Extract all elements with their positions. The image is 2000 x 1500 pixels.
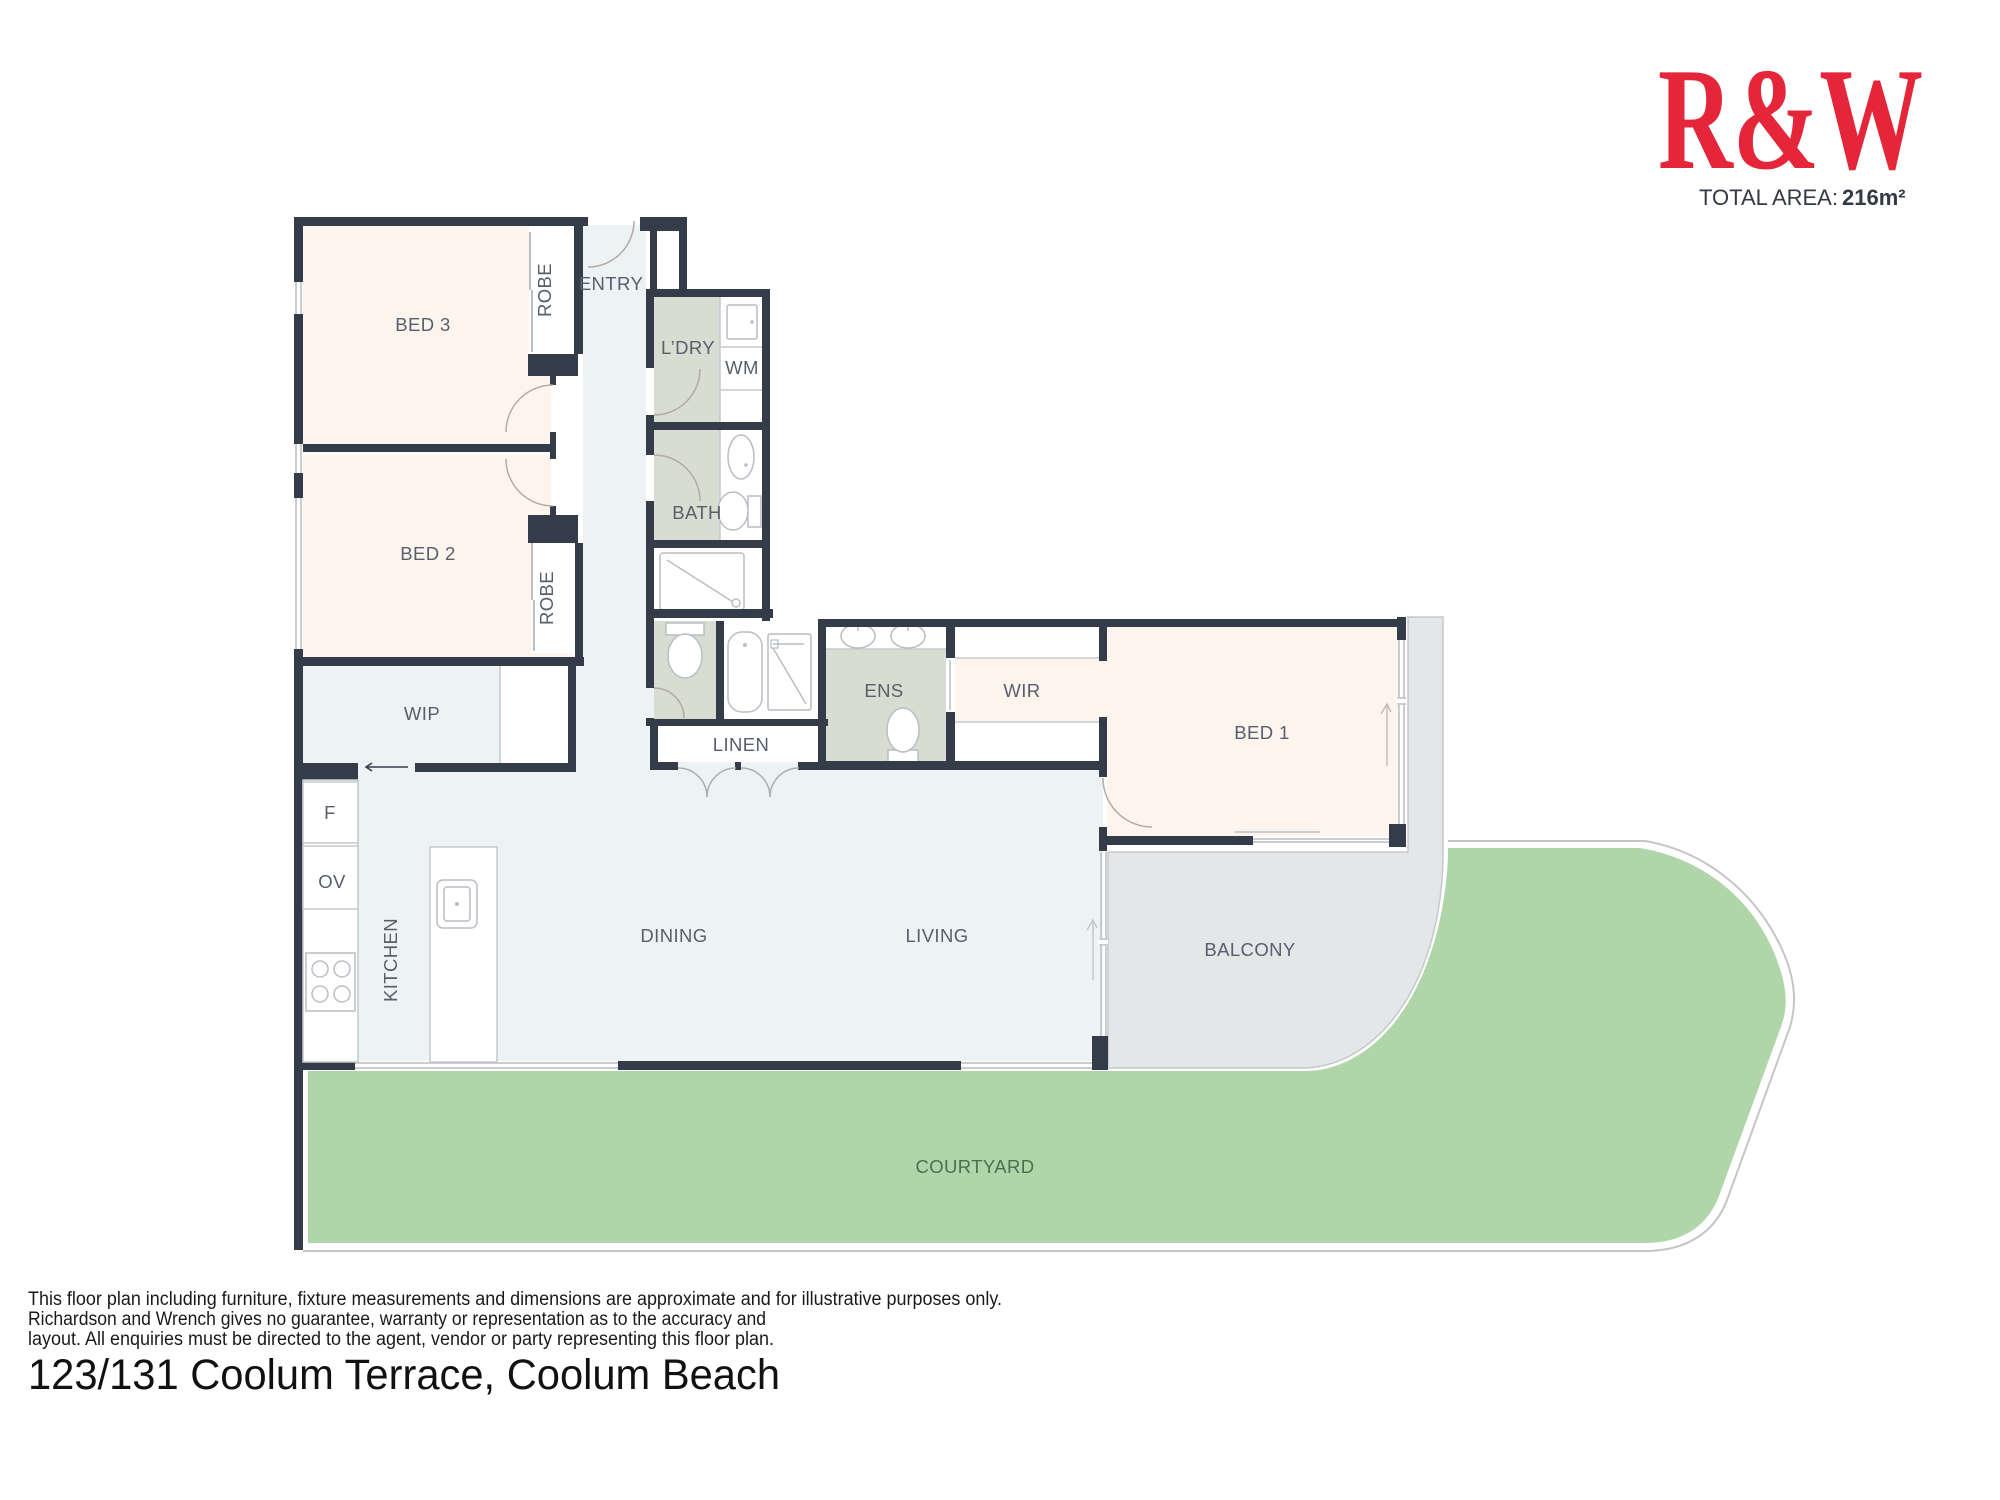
svg-text:WM: WM [725,357,759,378]
svg-text:DINING: DINING [640,925,707,946]
svg-text:L’DRY: L’DRY [661,337,715,358]
svg-text:TOTAL AREA:: TOTAL AREA: [1699,185,1838,210]
svg-text:R&W: R&W [1658,38,1923,200]
svg-text:ENS: ENS [864,680,903,701]
svg-text:BED 1: BED 1 [1234,722,1289,743]
svg-text:layout. All enquiries must be: layout. All enquiries must be directed t… [28,1329,774,1350]
svg-text:Richardson and Wrench gives no: Richardson and Wrench gives no guarantee… [28,1309,766,1330]
svg-text:123/131 Coolum Terrace, Coolum: 123/131 Coolum Terrace, Coolum Beach [28,1351,780,1399]
svg-text:ENTRY: ENTRY [579,273,643,294]
svg-text:LIVING: LIVING [905,925,968,946]
svg-text:BALCONY: BALCONY [1204,939,1295,960]
svg-text:BATH: BATH [672,502,722,523]
svg-text:LINEN: LINEN [713,734,770,755]
svg-text:BED 3: BED 3 [395,314,450,335]
svg-text:ROBE: ROBE [536,571,557,625]
svg-text:WIR: WIR [1003,680,1040,701]
svg-text:OV: OV [318,871,346,892]
svg-text:F: F [324,802,336,823]
svg-text:ROBE: ROBE [534,263,555,317]
svg-text:COURTYARD: COURTYARD [915,1156,1034,1177]
svg-text:This floor plan including furn: This floor plan including furniture, fix… [28,1289,1002,1310]
svg-text:BED 2: BED 2 [400,543,455,564]
svg-text:216m²: 216m² [1842,185,1906,210]
svg-text:KITCHEN: KITCHEN [380,918,401,1002]
svg-text:WIP: WIP [404,703,440,724]
